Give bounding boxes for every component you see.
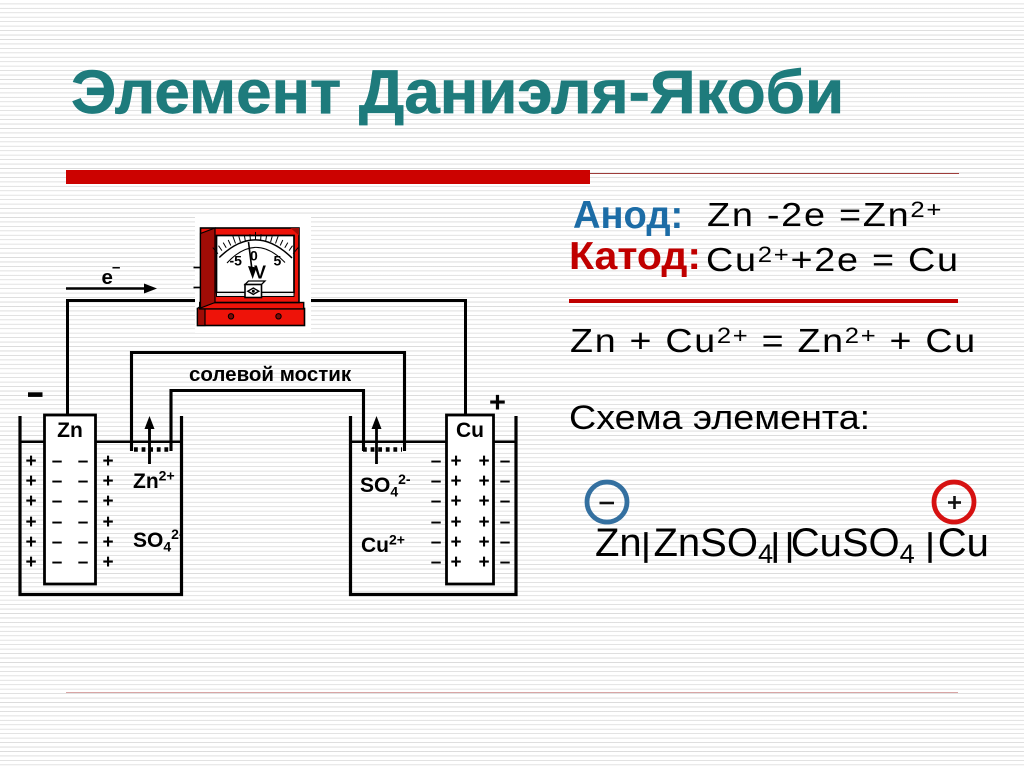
svg-text:SO42-: SO42- bbox=[360, 471, 411, 500]
svg-text:+: + bbox=[25, 451, 36, 472]
svg-text:–: – bbox=[431, 552, 442, 573]
svg-text:–: – bbox=[78, 451, 89, 472]
svg-text:+: + bbox=[478, 451, 489, 472]
svg-text:+: + bbox=[25, 532, 36, 553]
svg-text:–: – bbox=[78, 491, 89, 512]
svg-text:+: + bbox=[25, 471, 36, 492]
svg-text:–: – bbox=[52, 532, 63, 553]
svg-text:–: – bbox=[52, 471, 63, 492]
svg-text:+: + bbox=[478, 471, 489, 492]
svg-text:–: – bbox=[52, 491, 63, 512]
svg-text:+: + bbox=[102, 471, 113, 492]
svg-text:5: 5 bbox=[274, 253, 282, 269]
svg-text:+: + bbox=[450, 552, 461, 573]
svg-text:+: + bbox=[102, 552, 113, 573]
svg-text:+: + bbox=[25, 491, 36, 512]
svg-text:–: – bbox=[52, 512, 63, 533]
svg-text:+: + bbox=[102, 491, 113, 512]
svg-text:+: + bbox=[450, 532, 461, 553]
svg-text:Zn2+: Zn2+ bbox=[133, 468, 175, 494]
svg-text:+: + bbox=[478, 532, 489, 553]
svg-text:V: V bbox=[254, 263, 266, 283]
svg-text:–: – bbox=[52, 451, 63, 472]
svg-text:+: + bbox=[478, 491, 489, 512]
svg-text:–: – bbox=[52, 552, 63, 573]
svg-text:–: – bbox=[500, 451, 511, 472]
svg-text:–: – bbox=[500, 532, 511, 553]
svg-text:+: + bbox=[102, 451, 113, 472]
svg-text:–: – bbox=[78, 512, 89, 533]
svg-text:+: + bbox=[102, 532, 113, 553]
svg-text:Zn: Zn bbox=[57, 419, 83, 442]
svg-text:+: + bbox=[450, 491, 461, 512]
svg-text:Cu2+: Cu2+ bbox=[361, 532, 405, 558]
svg-text:+: + bbox=[450, 471, 461, 492]
svg-text:+: + bbox=[478, 552, 489, 573]
svg-text:–: – bbox=[78, 471, 89, 492]
svg-text:+: + bbox=[25, 512, 36, 533]
svg-text:+: + bbox=[478, 512, 489, 533]
svg-text:–: – bbox=[431, 471, 442, 492]
svg-text:+: + bbox=[25, 552, 36, 573]
svg-text:+: + bbox=[102, 512, 113, 533]
svg-text:–: – bbox=[431, 532, 442, 553]
svg-text:-5: -5 bbox=[230, 253, 243, 269]
svg-text:–: – bbox=[500, 491, 511, 512]
svg-text:+: + bbox=[450, 451, 461, 472]
svg-text:–: – bbox=[112, 259, 120, 276]
svg-text:–: – bbox=[431, 451, 442, 472]
svg-text:–: – bbox=[78, 552, 89, 573]
svg-text:–: – bbox=[431, 512, 442, 533]
svg-text:–: – bbox=[431, 491, 442, 512]
svg-text:солевой мостик: солевой мостик bbox=[189, 363, 352, 386]
svg-text:–: – bbox=[500, 471, 511, 492]
svg-text:–: – bbox=[78, 532, 89, 553]
svg-text:+: + bbox=[450, 512, 461, 533]
svg-text:–: – bbox=[500, 552, 511, 573]
svg-text:Cu: Cu bbox=[456, 419, 484, 442]
svg-text:SO42-: SO42- bbox=[133, 526, 184, 555]
svg-text:–: – bbox=[500, 512, 511, 533]
